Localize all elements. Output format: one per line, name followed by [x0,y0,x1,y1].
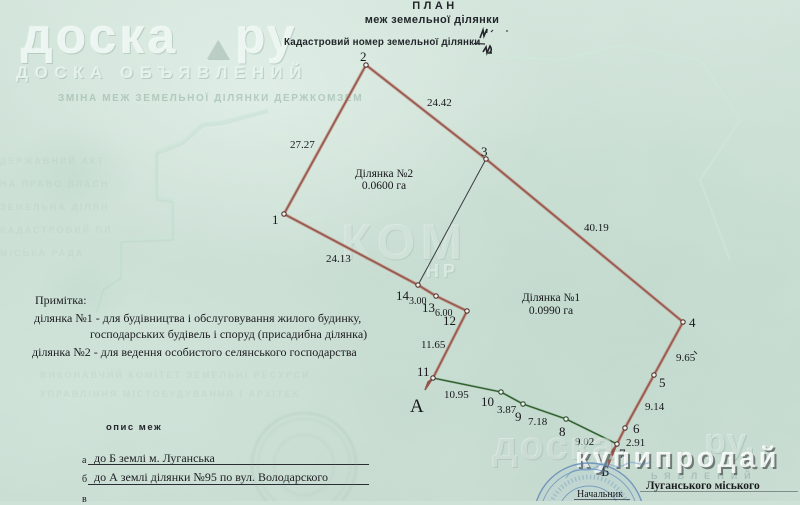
svg-text:0.0600 га: 0.0600 га [362,180,406,192]
svg-text:9.14: 9.14 [645,401,665,413]
svg-text:Ділянка №1: Ділянка №1 [522,292,581,304]
svg-text:27.27: 27.27 [290,139,315,151]
svg-text:1: 1 [272,212,279,227]
svg-text:2: 2 [360,49,367,64]
svg-text:9.65: 9.65 [676,352,696,364]
svg-text:Ділянка №2: Ділянка №2 [355,168,414,180]
svg-text:11: 11 [417,364,430,379]
svg-text:4: 4 [689,315,696,330]
svg-text:3.00: 3.00 [409,296,427,307]
svg-text:А: А [410,396,424,417]
svg-text:40.19: 40.19 [584,222,609,234]
svg-text:5: 5 [659,375,666,390]
svg-text:10: 10 [481,394,494,409]
svg-text:10.95: 10.95 [444,389,469,401]
svg-text:14: 14 [396,288,410,303]
svg-text:24.13: 24.13 [326,253,351,265]
svg-text:6.00: 6.00 [435,308,453,319]
svg-text:0.0990 га: 0.0990 га [529,305,573,317]
svg-text:3: 3 [481,144,488,159]
svg-text:11.65: 11.65 [421,339,446,351]
svg-text:24.42: 24.42 [427,97,452,109]
svg-text:3.87: 3.87 [497,404,517,416]
